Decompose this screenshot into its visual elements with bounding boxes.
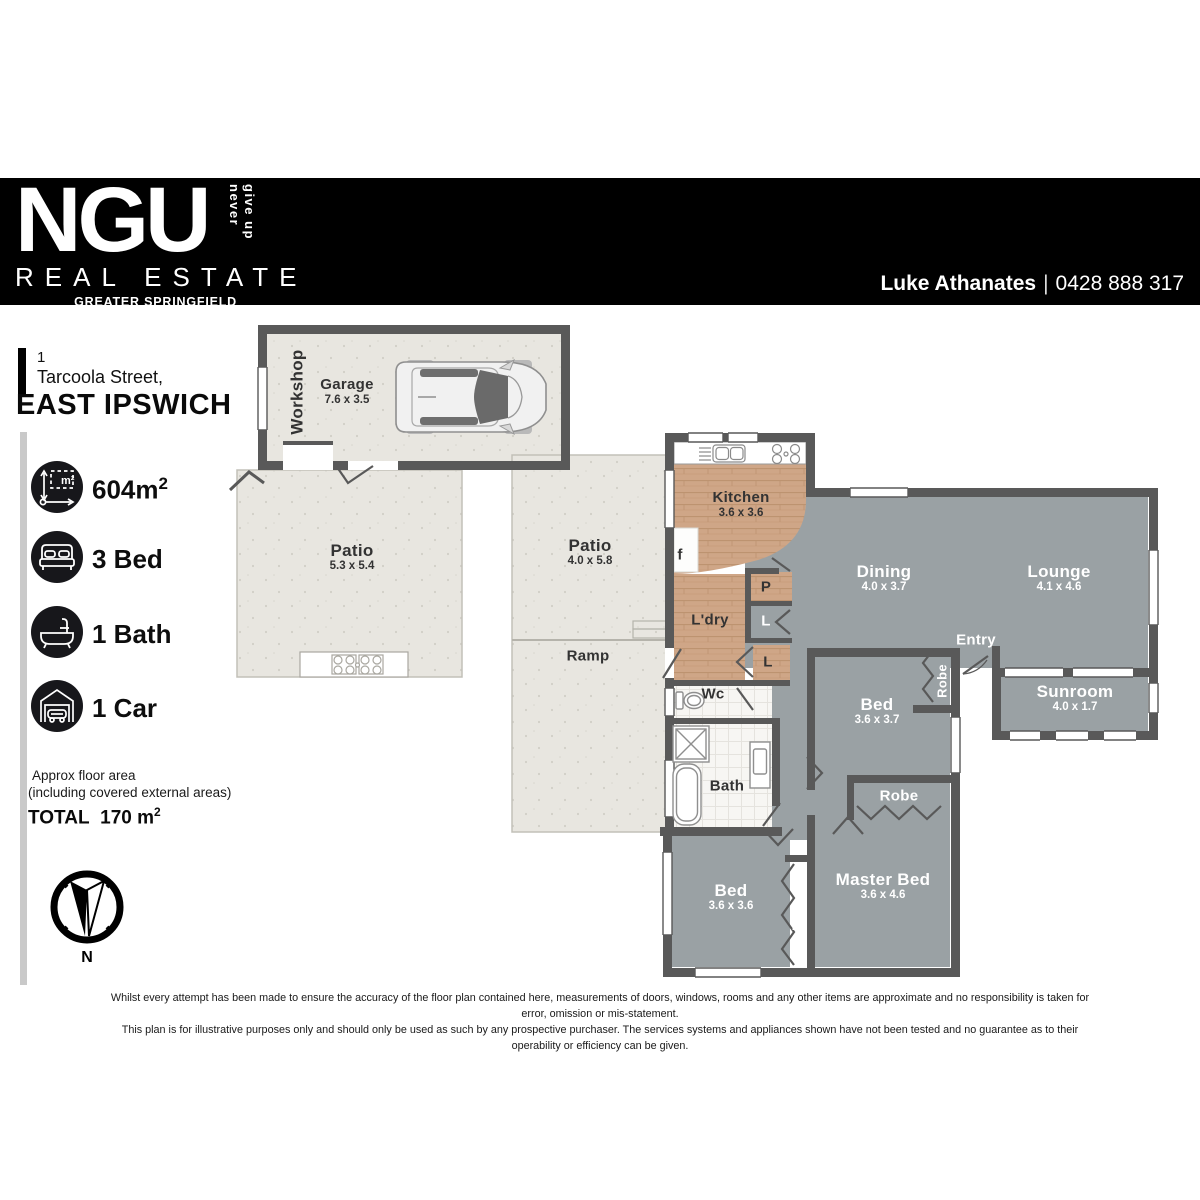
car-top-view bbox=[396, 360, 546, 434]
room-label-bath: Bath bbox=[710, 779, 745, 796]
room-label-fridge: f bbox=[677, 548, 682, 565]
toilet-icon bbox=[676, 692, 704, 709]
room-label-lounge: Lounge4.1 x 4.6 bbox=[1027, 562, 1090, 594]
room-label-garage: Garage7.6 x 3.5 bbox=[320, 377, 374, 407]
room-label-robe-3: Robe bbox=[791, 897, 806, 931]
room-label-robe-1: Robe bbox=[936, 664, 951, 698]
room-label-entry: Entry bbox=[956, 633, 996, 650]
bathtub-icon bbox=[673, 764, 701, 825]
room-label-patio-2: Patio4.0 x 5.8 bbox=[568, 536, 613, 568]
room-label-kitchen: Kitchen3.6 x 3.6 bbox=[712, 490, 769, 520]
room-label-bed-1: Bed3.6 x 3.7 bbox=[855, 695, 900, 727]
disclaimer: Whilst every attempt has been made to en… bbox=[100, 990, 1100, 1054]
bbq-icon bbox=[300, 652, 408, 677]
disclaimer-line-1: Whilst every attempt has been made to en… bbox=[100, 990, 1100, 1022]
room-label-sunroom: Sunroom4.0 x 1.7 bbox=[1037, 682, 1114, 714]
room-label-linen-2: L bbox=[763, 655, 772, 672]
floorplan-flyer: NGU never give up REAL ESTATE GREATER SP… bbox=[0, 0, 1200, 1200]
room-label-laundry: L'dry bbox=[691, 613, 729, 630]
room-label-bed-2: Bed3.6 x 3.6 bbox=[709, 881, 754, 913]
room-label-robe-2: Robe bbox=[880, 789, 919, 806]
room-label-linen-1: L bbox=[761, 614, 770, 631]
kitchen-bench bbox=[674, 442, 806, 464]
room-label-pantry: P bbox=[761, 580, 771, 597]
room-label-wc: Wc bbox=[701, 687, 724, 704]
room-label-dining: Dining4.0 x 3.7 bbox=[857, 562, 912, 594]
room-label-workshop: Workshop bbox=[287, 349, 306, 434]
disclaimer-line-2: This plan is for illustrative purposes o… bbox=[100, 1022, 1100, 1054]
room-label-patio-1: Patio5.3 x 5.4 bbox=[330, 541, 375, 573]
shower-icon bbox=[673, 726, 709, 762]
vanity-icon bbox=[750, 742, 770, 788]
room-label-master-bed: Master Bed3.6 x 4.6 bbox=[836, 870, 931, 902]
room-label-ramp: Ramp bbox=[567, 649, 610, 666]
